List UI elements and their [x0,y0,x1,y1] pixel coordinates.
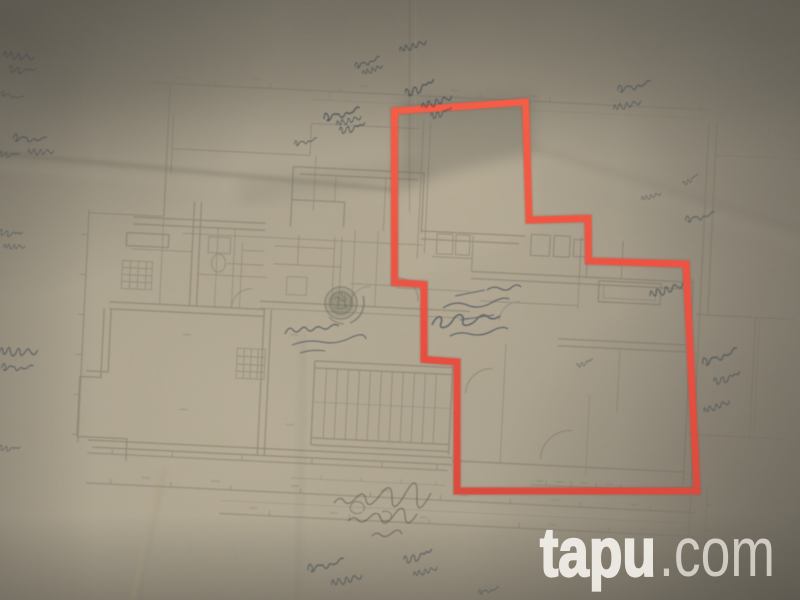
svg-text:.com: .com [659,513,775,591]
svg-text:tapu: tapu [540,514,656,591]
